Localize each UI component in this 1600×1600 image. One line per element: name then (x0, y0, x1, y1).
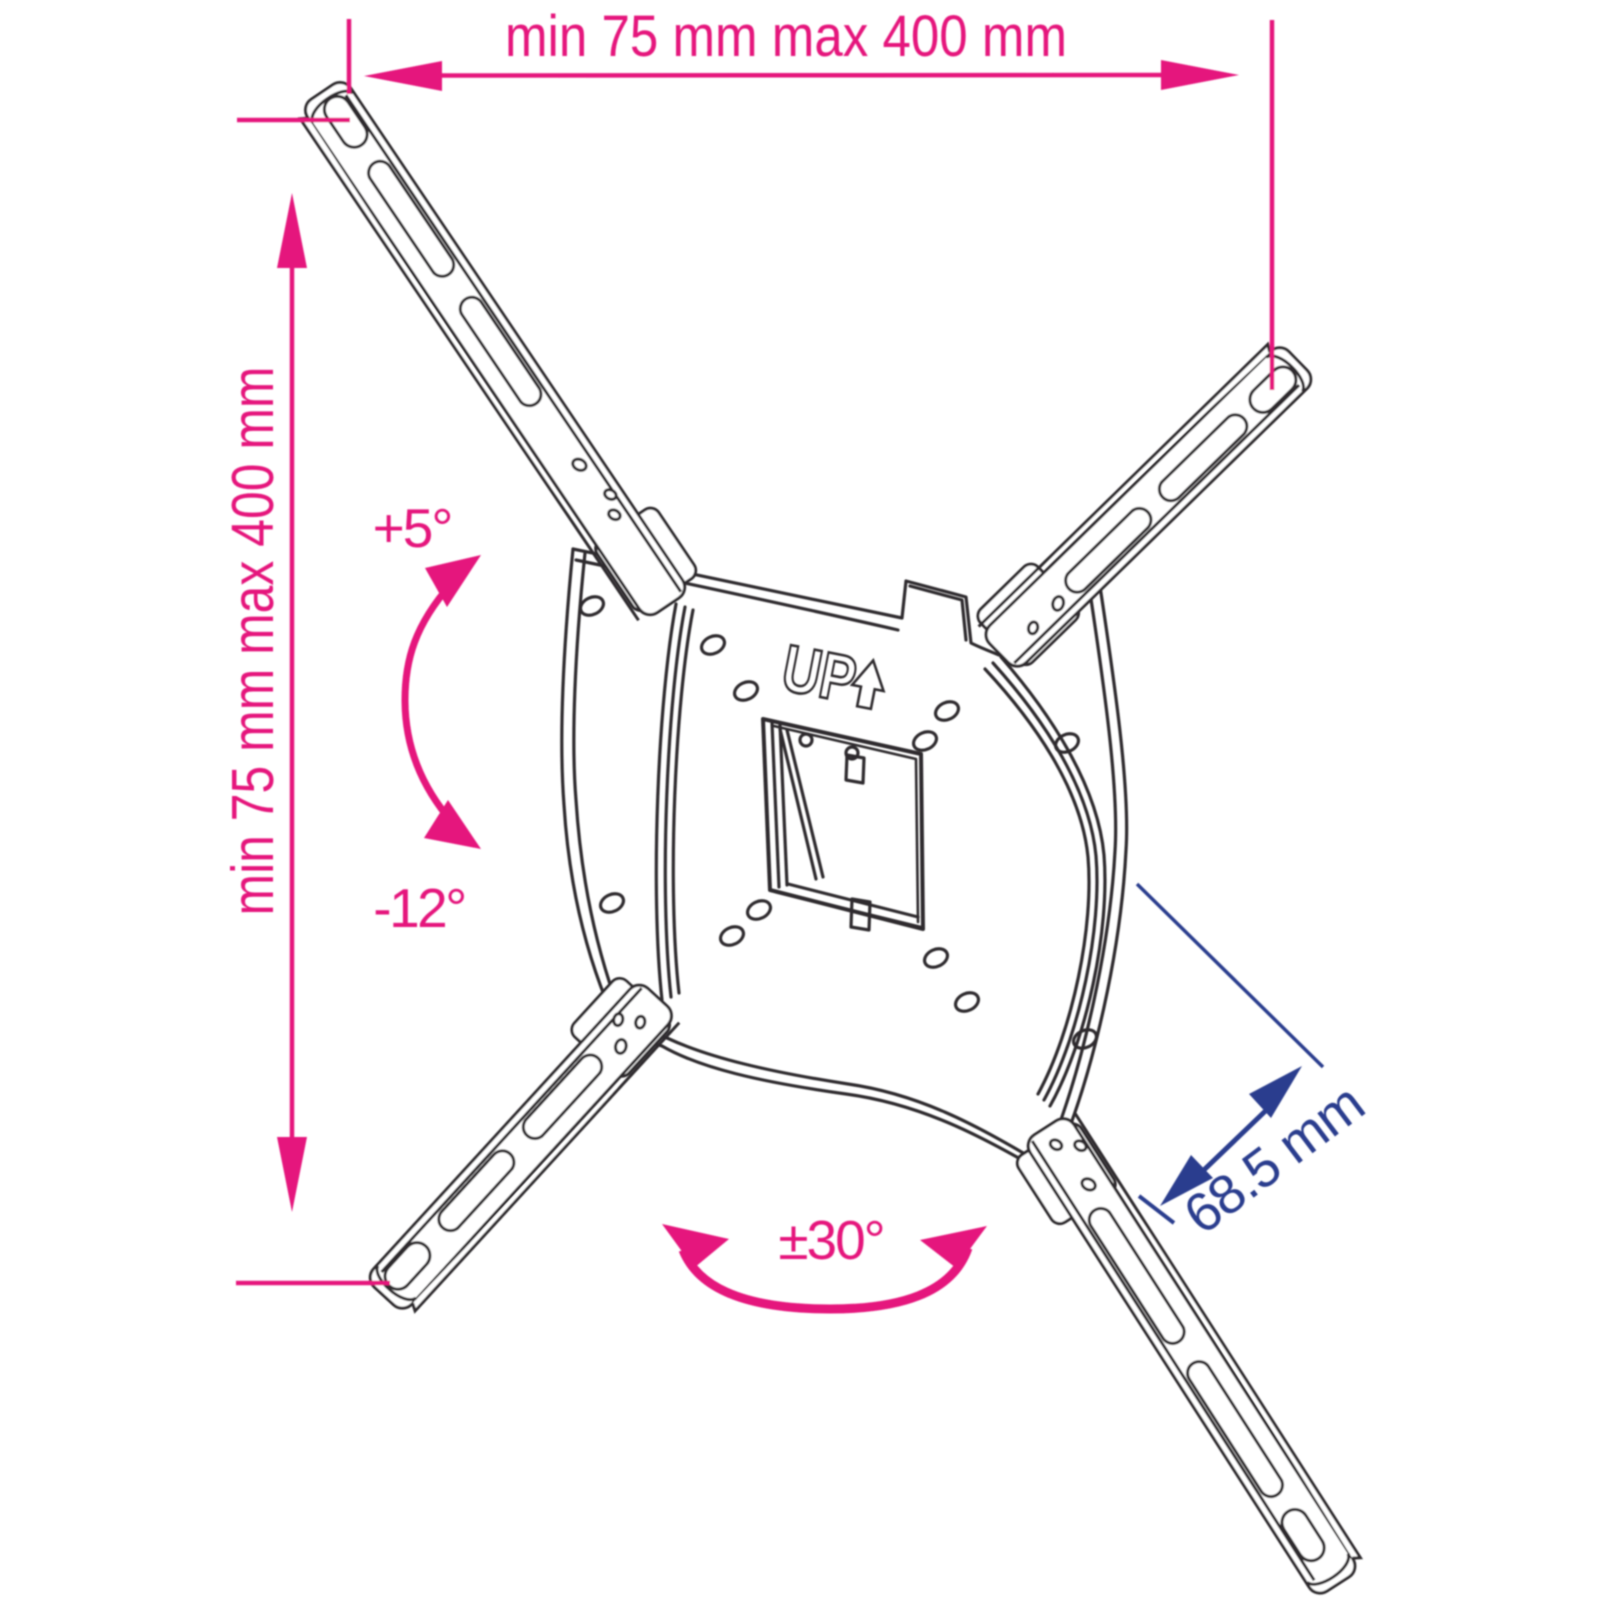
svg-text:±30°: ±30° (778, 1209, 883, 1271)
svg-text:min 75 mm max 400 mm: min 75 mm max 400 mm (505, 4, 1067, 69)
svg-text:UP: UP (776, 630, 862, 717)
svg-text:-12°: -12° (373, 877, 465, 939)
svg-text:min 75 mm max 400 mm: min 75 mm max 400 mm (220, 367, 286, 916)
svg-text:+5°: +5° (373, 497, 452, 559)
